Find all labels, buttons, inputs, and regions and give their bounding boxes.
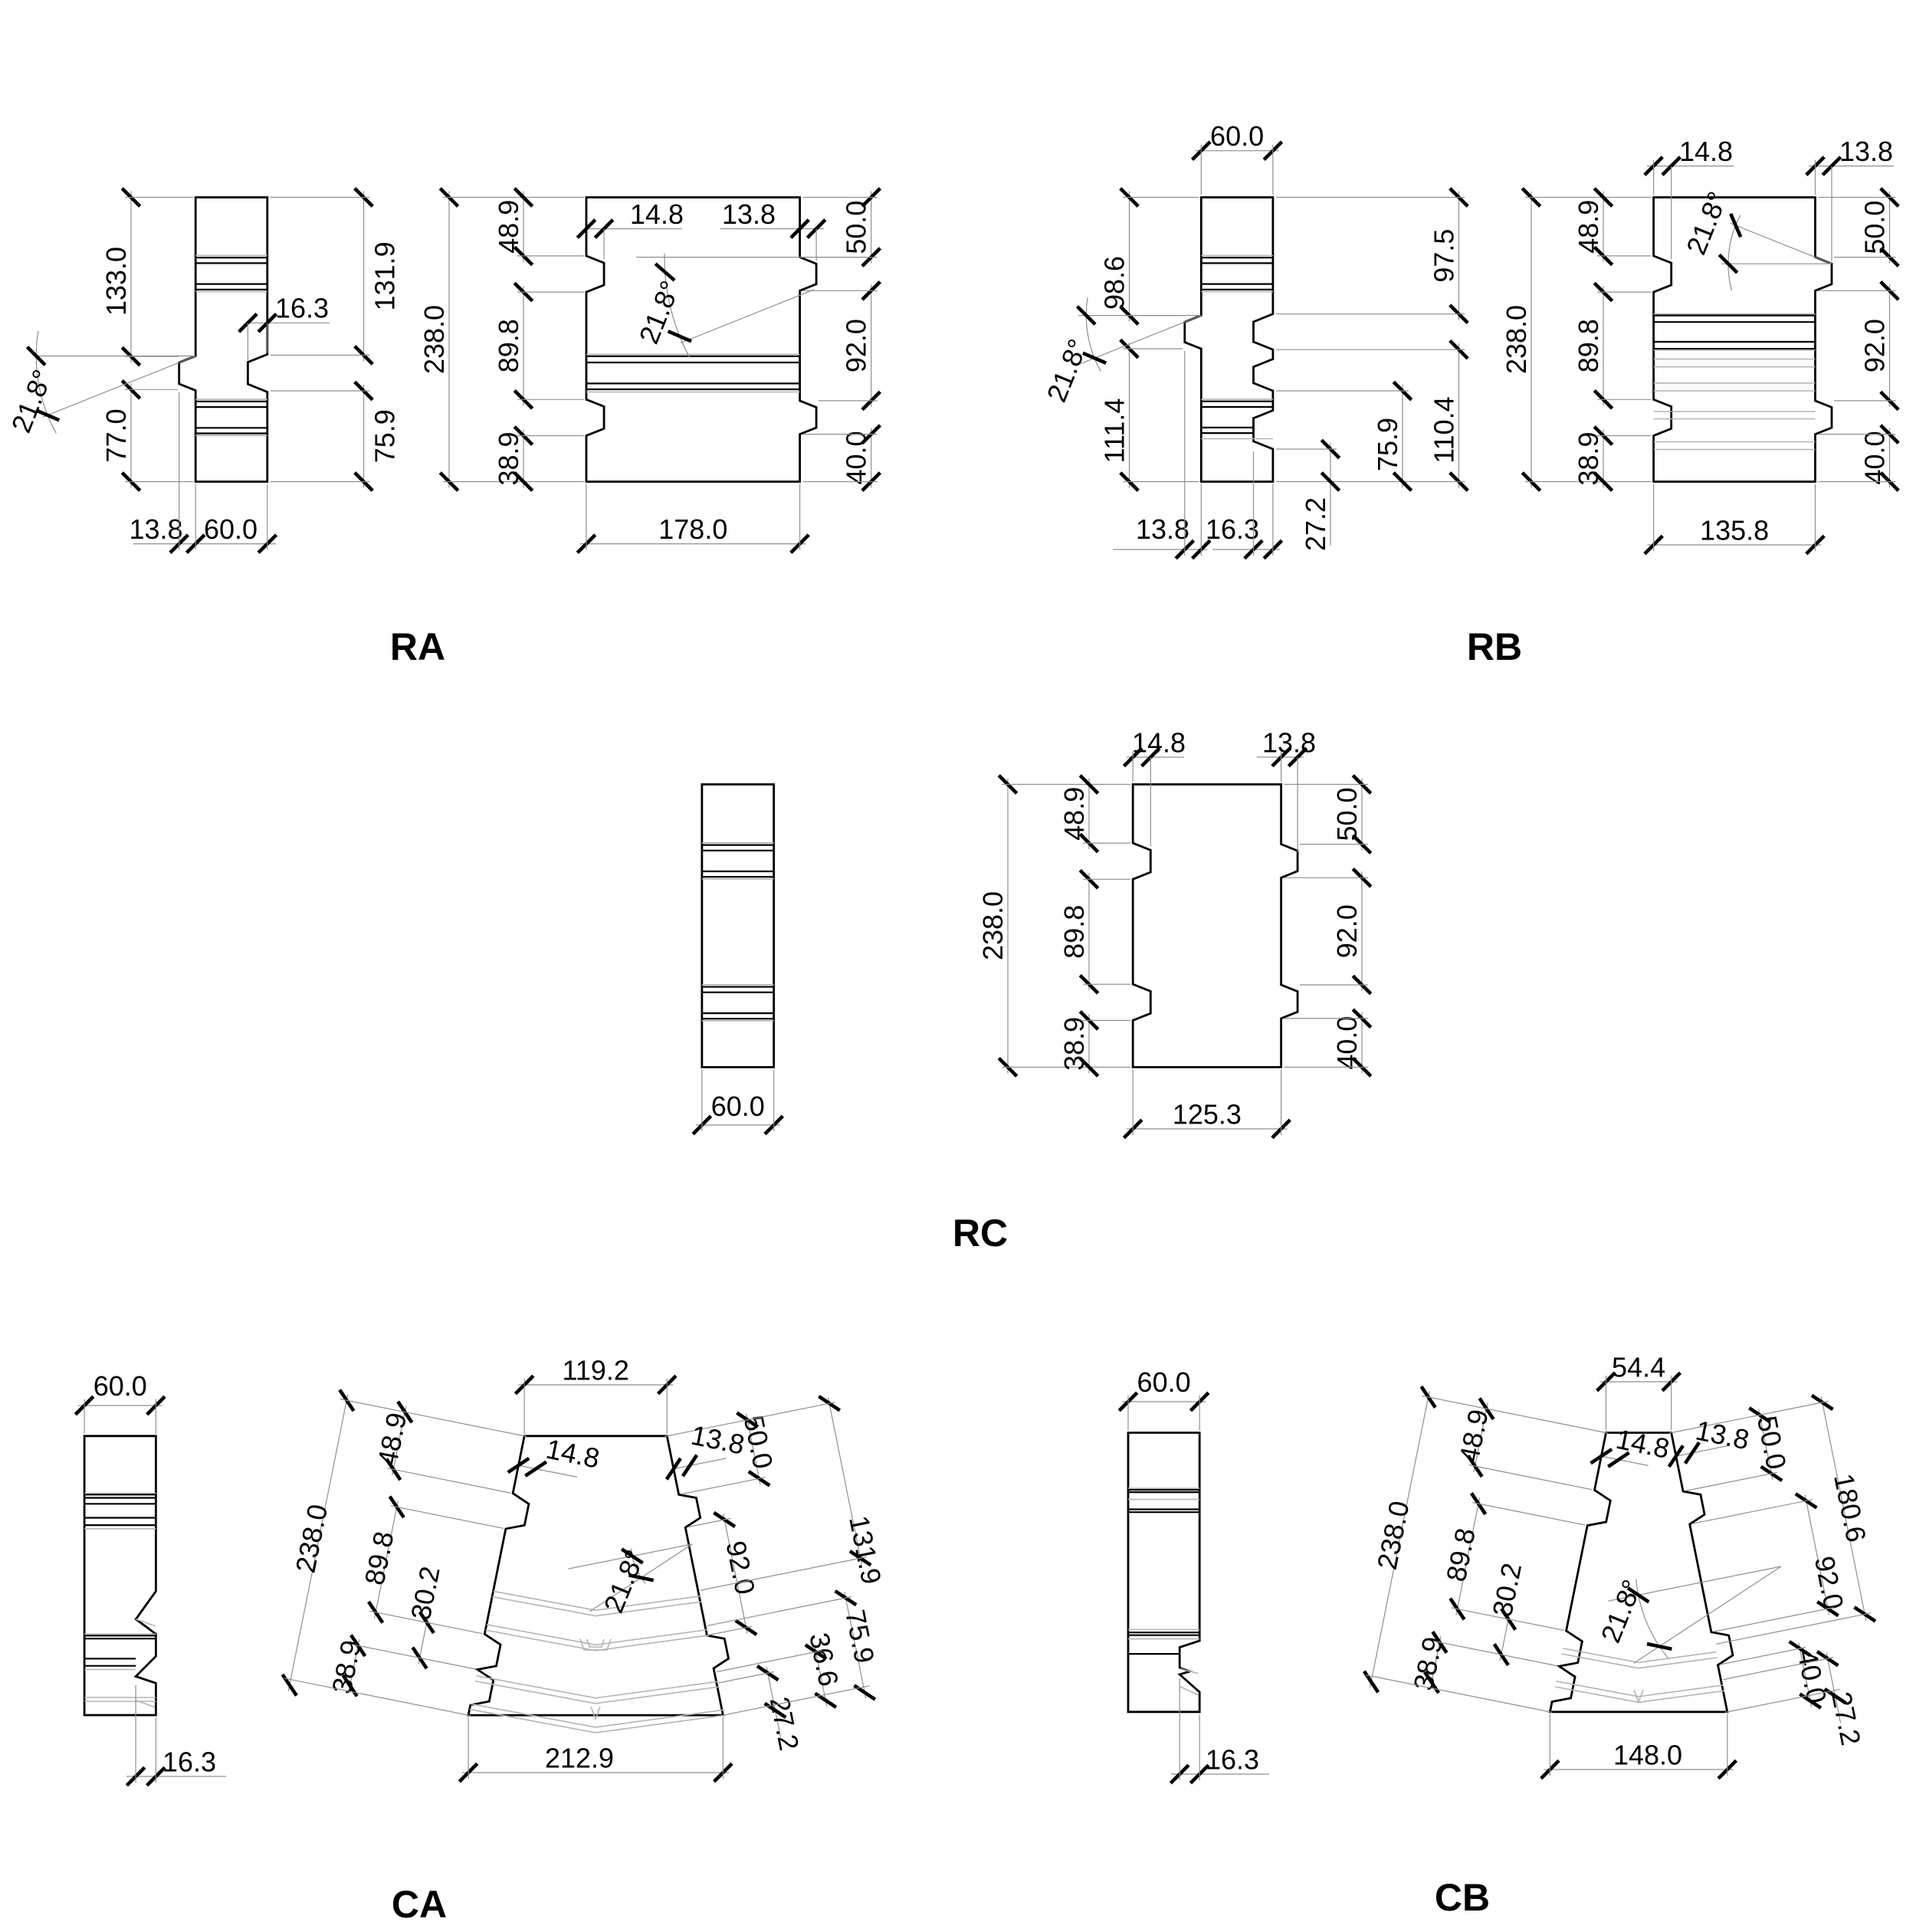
svg-text:135.8: 135.8 (1700, 515, 1769, 546)
svg-text:RA: RA (390, 625, 445, 668)
svg-text:48.9: 48.9 (1058, 787, 1090, 841)
svg-text:60.0: 60.0 (711, 1091, 765, 1122)
svg-text:50.0: 50.0 (1859, 201, 1891, 254)
svg-text:13.8: 13.8 (1262, 727, 1316, 759)
svg-text:92.0: 92.0 (841, 319, 872, 372)
svg-text:98.6: 98.6 (1099, 256, 1130, 310)
svg-text:40.0: 40.0 (841, 431, 872, 484)
svg-text:CA: CA (392, 1883, 447, 1926)
svg-text:131.9: 131.9 (369, 241, 401, 310)
svg-text:38.9: 38.9 (493, 431, 524, 485)
svg-text:48.9: 48.9 (493, 200, 524, 254)
svg-text:16.3: 16.3 (1206, 1744, 1259, 1776)
svg-text:40.0: 40.0 (1331, 1016, 1363, 1070)
svg-text:13.8: 13.8 (722, 198, 776, 230)
svg-text:54.4: 54.4 (1612, 1352, 1665, 1383)
svg-text:238.0: 238.0 (1501, 305, 1532, 374)
svg-text:14.8: 14.8 (1679, 136, 1733, 167)
svg-text:13.8: 13.8 (1839, 136, 1893, 167)
svg-text:48.9: 48.9 (1573, 200, 1604, 254)
svg-text:50.0: 50.0 (841, 201, 872, 254)
svg-text:89.8: 89.8 (493, 319, 524, 372)
svg-text:16.3: 16.3 (275, 292, 329, 323)
svg-text:92.0: 92.0 (1331, 904, 1363, 958)
svg-text:40.0: 40.0 (1859, 431, 1891, 484)
svg-text:38.9: 38.9 (1573, 431, 1604, 485)
svg-text:60.0: 60.0 (94, 1370, 147, 1402)
svg-text:13.8: 13.8 (1136, 513, 1189, 545)
svg-text:77.0: 77.0 (100, 408, 132, 462)
svg-text:125.3: 125.3 (1173, 1099, 1242, 1130)
svg-text:27.2: 27.2 (1300, 497, 1331, 551)
svg-text:60.0: 60.0 (204, 513, 258, 545)
svg-text:110.4: 110.4 (1429, 396, 1460, 463)
svg-text:RB: RB (1467, 625, 1522, 668)
svg-text:119.2: 119.2 (562, 1355, 628, 1386)
svg-text:50.0: 50.0 (1331, 787, 1363, 841)
svg-text:75.9: 75.9 (369, 409, 401, 463)
svg-text:13.8: 13.8 (129, 513, 182, 545)
svg-text:89.8: 89.8 (1058, 905, 1090, 959)
svg-text:38.9: 38.9 (1058, 1017, 1090, 1071)
svg-text:CB: CB (1435, 1876, 1490, 1919)
svg-text:60.0: 60.0 (1137, 1366, 1191, 1398)
svg-text:97.5: 97.5 (1429, 229, 1460, 283)
svg-text:238.0: 238.0 (418, 305, 450, 374)
svg-text:RC: RC (953, 1212, 1008, 1255)
svg-text:75.9: 75.9 (1372, 418, 1403, 471)
svg-text:178.0: 178.0 (658, 513, 727, 545)
svg-text:212.9: 212.9 (545, 1743, 614, 1774)
svg-text:89.8: 89.8 (1573, 319, 1604, 372)
svg-text:92.0: 92.0 (1859, 319, 1891, 372)
svg-text:16.3: 16.3 (1206, 513, 1259, 545)
svg-text:133.0: 133.0 (100, 247, 132, 316)
svg-text:148.0: 148.0 (1613, 1740, 1682, 1771)
svg-text:14.8: 14.8 (630, 198, 684, 230)
svg-text:60.0: 60.0 (1210, 120, 1264, 152)
svg-text:238.0: 238.0 (977, 891, 1009, 960)
svg-text:111.4: 111.4 (1099, 399, 1130, 464)
svg-text:16.3: 16.3 (162, 1747, 216, 1778)
svg-text:14.8: 14.8 (1132, 727, 1186, 759)
